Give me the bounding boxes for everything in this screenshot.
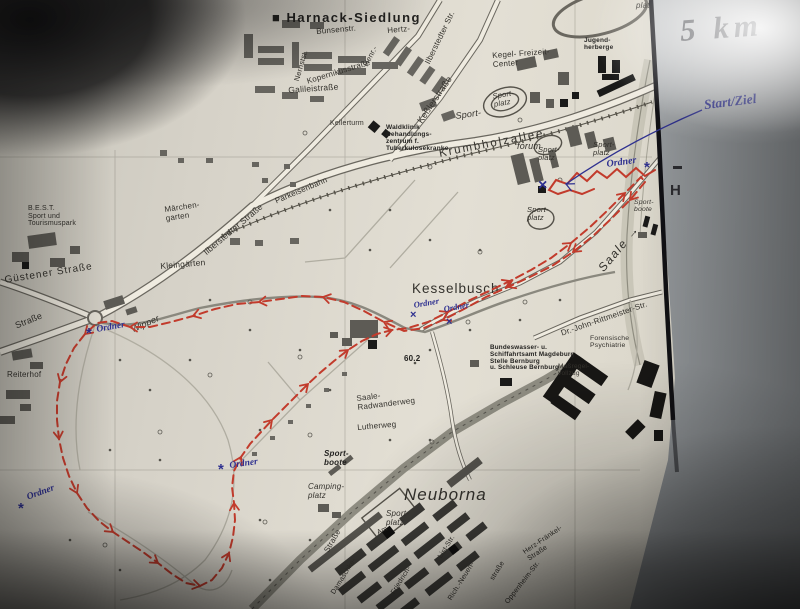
handwritten-star-mark: * — [644, 160, 650, 175]
route-arrowhead — [192, 310, 201, 321]
map-photo: ■ Harnack-SiedlungBunsenstr.Hertz-Nernst… — [0, 0, 800, 609]
start-pointer-arrow — [566, 110, 702, 184]
handwritten-star-mark: * — [218, 462, 224, 477]
background-tick-mark — [673, 166, 682, 169]
handwritten-star-mark: * — [18, 501, 24, 516]
background-letter: H — [670, 182, 681, 199]
hand-drawn-route — [54, 168, 655, 590]
hand-drawn-route-path — [57, 177, 645, 586]
route-overlay — [0, 0, 800, 609]
handwritten-x-mark: × — [538, 178, 547, 194]
handwritten-x-mark: × — [410, 310, 416, 321]
route-start-squiggle — [549, 168, 655, 194]
map-sheet-edge — [651, 0, 673, 420]
handwritten-x-mark: × — [446, 317, 452, 328]
route-arrowhead — [56, 374, 67, 383]
handwritten-star-mark: * — [86, 326, 92, 341]
route-arrowhead — [70, 485, 81, 495]
handwritten-distance-note: 5 km — [679, 7, 764, 49]
